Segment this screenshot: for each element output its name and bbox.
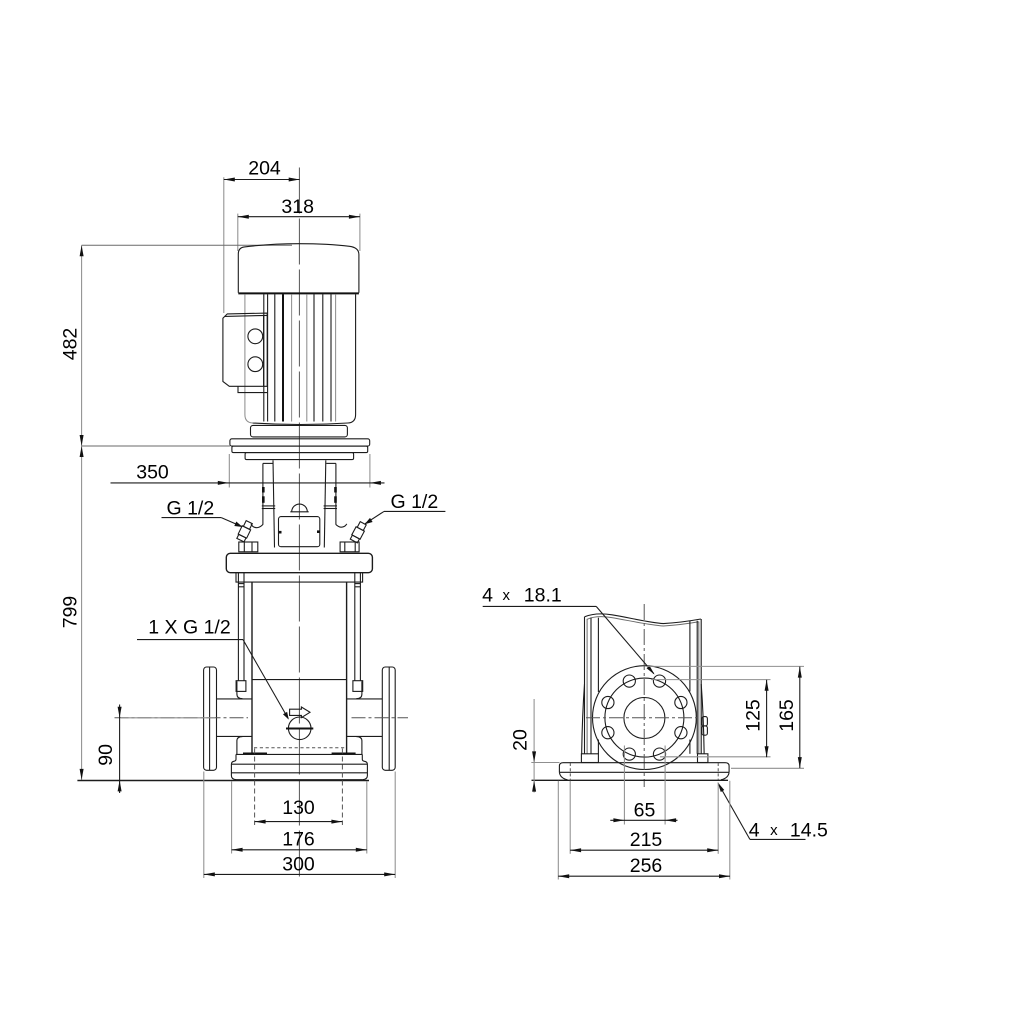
svg-text:4: 4: [482, 585, 493, 607]
svg-text:125: 125: [743, 699, 765, 732]
svg-text:4: 4: [749, 820, 760, 842]
svg-text:20: 20: [510, 729, 532, 751]
svg-text:799: 799: [60, 596, 82, 629]
svg-text:176: 176: [282, 829, 315, 851]
svg-text:165: 165: [776, 699, 798, 732]
svg-text:14.5: 14.5: [790, 820, 828, 842]
svg-text:204: 204: [248, 158, 281, 180]
svg-text:318: 318: [281, 196, 314, 218]
svg-text:1 X G 1/2: 1 X G 1/2: [148, 616, 230, 638]
svg-text:65: 65: [634, 799, 656, 821]
svg-text:G 1/2: G 1/2: [167, 497, 215, 519]
svg-text:18.1: 18.1: [524, 585, 562, 607]
svg-text:300: 300: [282, 853, 315, 875]
svg-text:130: 130: [282, 797, 315, 819]
svg-text:x: x: [503, 587, 511, 604]
svg-text:256: 256: [630, 855, 663, 877]
svg-text:350: 350: [136, 461, 169, 483]
svg-text:215: 215: [630, 829, 663, 851]
svg-text:90: 90: [95, 744, 117, 766]
svg-text:G 1/2: G 1/2: [391, 491, 439, 513]
svg-text:482: 482: [60, 328, 82, 361]
svg-text:x: x: [770, 822, 778, 839]
